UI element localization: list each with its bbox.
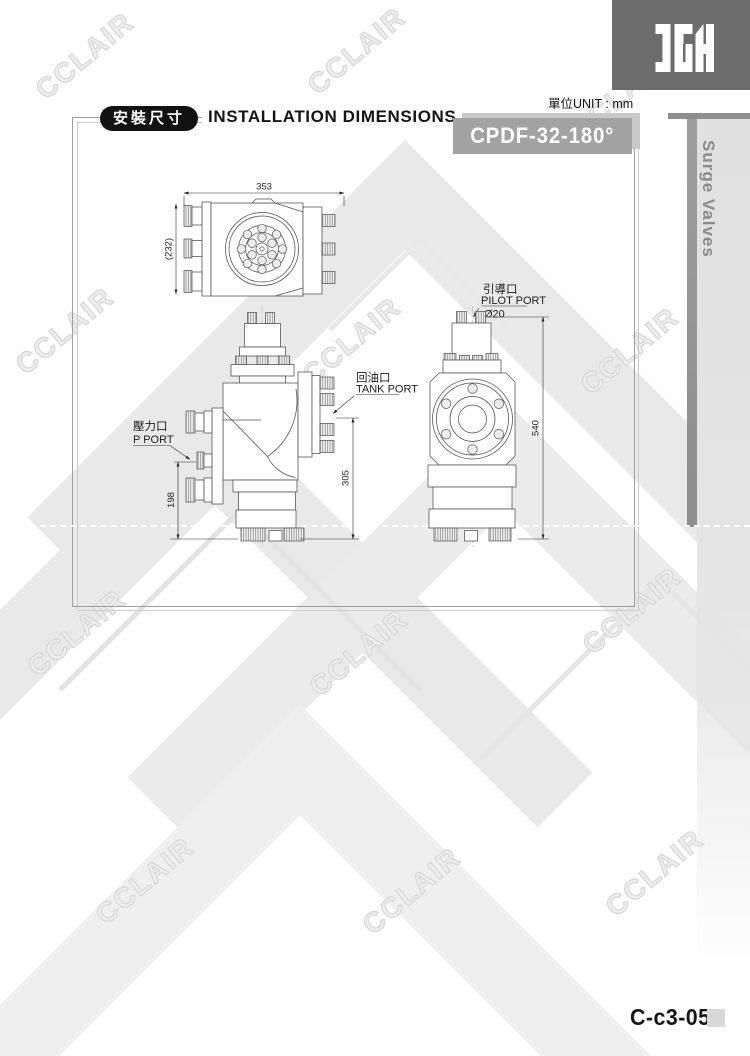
jgh-logo: JGH xyxy=(612,0,750,90)
pilot-diameter-label: Ø20 xyxy=(484,309,505,321)
jgh-logo-glyphs xyxy=(654,23,716,73)
front-view: 壓力口 P PORT 回油口 TANK PORT 198 305 xyxy=(133,307,418,548)
installation-dimensions-drawing: 353 (232) xyxy=(0,0,750,1056)
p-port-label-zh: 壓力口 xyxy=(133,420,168,433)
dim-body-height: 305 xyxy=(341,470,352,486)
section-title-pill: 安裝尺寸 xyxy=(100,106,198,131)
tank-port-label-en: TANK PORT xyxy=(356,384,418,396)
dim-width: 353 xyxy=(256,182,272,193)
page-code: C-c3-05 xyxy=(630,1004,711,1031)
p-port-label-en: P PORT xyxy=(133,434,174,446)
dim-depth: (232) xyxy=(164,238,175,260)
page-title: INSTALLATION DIMENSIONS xyxy=(202,104,462,130)
footer-square xyxy=(707,1009,725,1027)
pilot-port-label-zh: 引導口 xyxy=(483,282,518,296)
pilot-port-label-en: PILOT PORT xyxy=(481,295,546,307)
dim-total-height: 540 xyxy=(531,420,542,436)
model-badge: CPDF-32-180° xyxy=(453,118,632,154)
dim-p-port-height: 198 xyxy=(166,492,177,508)
tank-port-label-zh: 回油口 xyxy=(356,371,391,385)
side-view: 引導口 PILOT PORT Ø20 540 xyxy=(428,282,549,548)
unit-note: 單位UNIT : mm xyxy=(548,93,633,112)
top-view: 353 (232) xyxy=(164,182,345,297)
model-badge-label: CPDF-32-180° xyxy=(470,118,614,154)
